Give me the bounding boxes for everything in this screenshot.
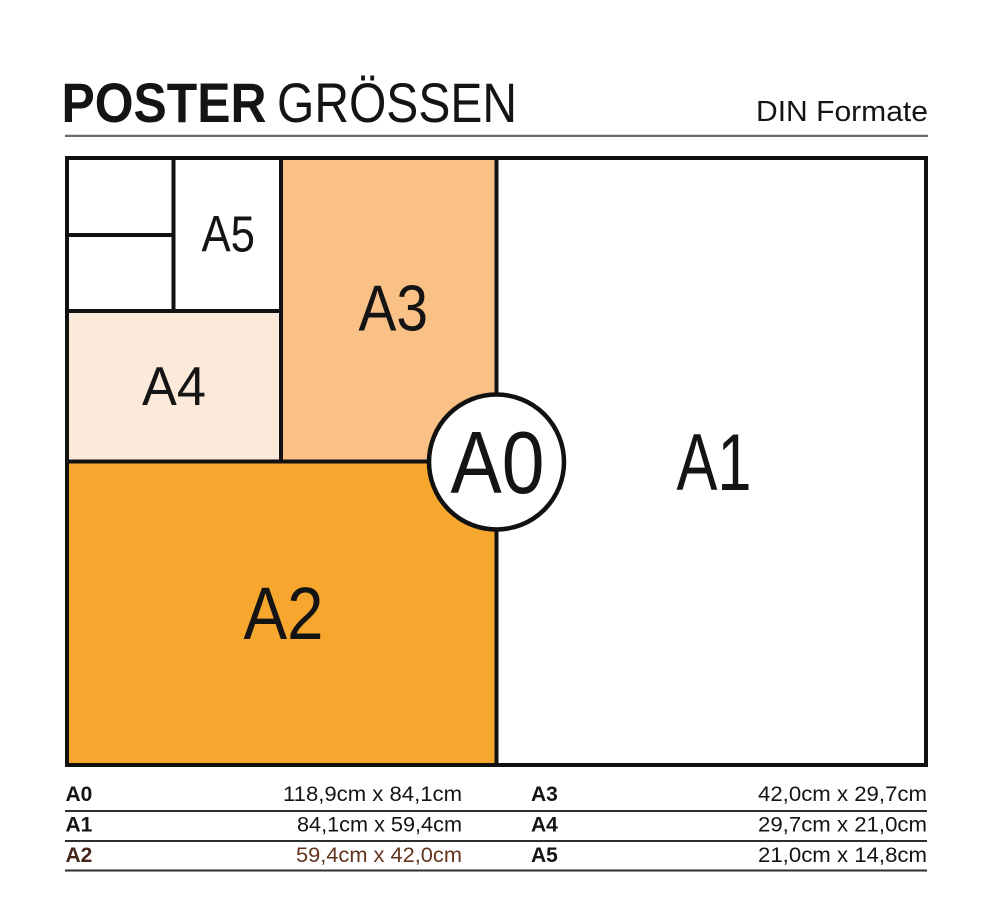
- svg-text:59,4cm x 42,0cm: 59,4cm x 42,0cm: [296, 844, 462, 867]
- svg-text:29,7cm x 21,0cm: 29,7cm x 21,0cm: [758, 814, 927, 837]
- svg-text:42,0cm x 29,7cm: 42,0cm x 29,7cm: [758, 783, 927, 806]
- svg-text:DIN Formate: DIN Formate: [756, 96, 928, 128]
- svg-text:A5: A5: [202, 206, 256, 263]
- svg-text:A2: A2: [66, 844, 93, 867]
- svg-text:A4: A4: [531, 814, 558, 837]
- svg-text:A3: A3: [531, 783, 558, 806]
- svg-text:GRÖSSEN: GRÖSSEN: [277, 71, 517, 134]
- svg-text:A2: A2: [244, 572, 324, 655]
- svg-text:POSTER: POSTER: [62, 71, 267, 134]
- svg-text:A0: A0: [451, 413, 545, 512]
- svg-text:A1: A1: [677, 418, 752, 508]
- svg-text:118,9cm x 84,1cm: 118,9cm x 84,1cm: [283, 783, 462, 806]
- svg-text:A1: A1: [66, 814, 93, 837]
- svg-text:A0: A0: [66, 783, 93, 806]
- svg-text:A3: A3: [359, 272, 429, 345]
- svg-text:A5: A5: [531, 844, 558, 867]
- svg-text:A4: A4: [142, 355, 206, 417]
- svg-text:84,1cm x 59,4cm: 84,1cm x 59,4cm: [297, 814, 462, 837]
- svg-text:21,0cm x 14,8cm: 21,0cm x 14,8cm: [758, 844, 927, 867]
